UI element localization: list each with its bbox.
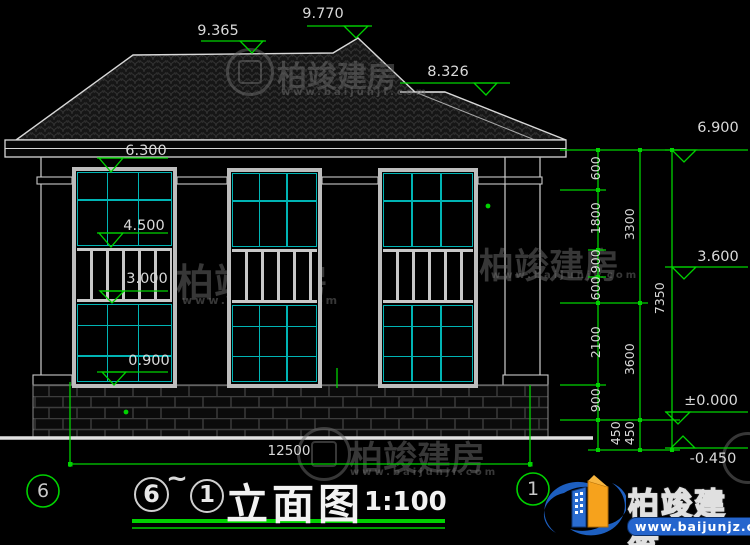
overall-width-label: 12500	[254, 445, 324, 459]
left-elevation-label: 3.000	[112, 272, 182, 287]
chain-dim-label: 2100	[590, 314, 603, 370]
cad-elevation-drawing: 柏竣建房 www.baijunjf.com 柏竣建房 www.baijunjf.…	[0, 0, 750, 545]
drawing-title: 立面图	[226, 471, 364, 532]
title-axis-to: 1	[190, 479, 224, 513]
left-elevation-label: 4.500	[109, 219, 179, 234]
chain-dim-label: 900	[590, 372, 603, 428]
chain-dim-label: 450	[624, 405, 637, 461]
axis-bubble-left: 6	[31, 480, 55, 504]
right-elevation-label: 6.900	[683, 121, 750, 136]
chain-dim-label: 600	[590, 260, 603, 316]
title-tilde: ~	[163, 466, 191, 492]
roof-elevation-label: 9.365	[183, 24, 253, 39]
company-logo-url: www.baijunjz.com	[627, 517, 750, 536]
right-elevation-label: -0.450	[678, 452, 748, 467]
left-elevation-label: 6.300	[111, 144, 181, 159]
chain-dim-label: 3300	[624, 196, 637, 252]
chain-dim-label: 450	[610, 405, 623, 461]
left-elevation-label: 0.900	[114, 354, 184, 369]
right-elevation-label: ±0.000	[676, 394, 746, 409]
company-logo-icon	[542, 471, 626, 543]
roof-elevation-label: 8.326	[413, 65, 483, 80]
roof-elevation-label: 9.770	[288, 7, 358, 22]
chain-dim-label: 600	[590, 140, 603, 196]
drawing-scale: 1:100	[364, 487, 447, 517]
chain-dim-label: 7350	[654, 270, 667, 326]
right-elevation-label: 3.600	[683, 250, 750, 265]
chain-dim-label: 3600	[624, 331, 637, 387]
